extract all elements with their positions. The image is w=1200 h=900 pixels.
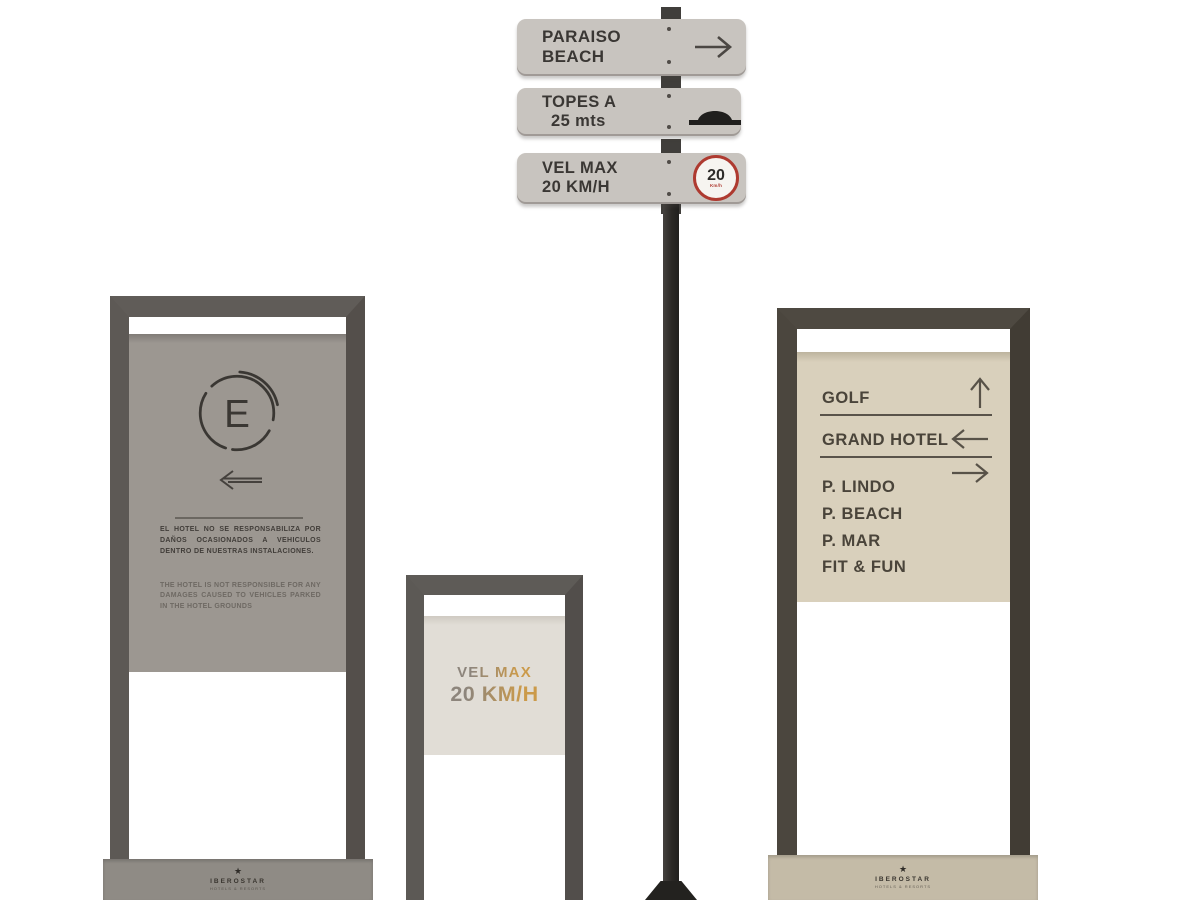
wayfinding-item-p-beach: P. BEACH [822, 505, 903, 524]
parking-sign-plinth: ★ IBEROSTAR HOTELS & RESORTS [103, 859, 373, 900]
rivet-icon [667, 192, 671, 196]
plate-label-line1: PARAISO [542, 27, 621, 47]
parking-sign-panel: E EL HOTEL NO SE RESPONSABILIZA POR DAÑO… [129, 334, 346, 672]
parking-symbol-icon: E [191, 367, 283, 459]
divider [820, 414, 992, 416]
arrow-right-icon [949, 460, 991, 486]
pole-bracket [661, 139, 681, 154]
plate-label: PARAISO BEACH [542, 27, 621, 67]
wayfinding-sign-plinth: ★ IBEROSTAR HOTELS & RESORTS [768, 855, 1038, 900]
plate-label-line2: 25 mts [542, 112, 616, 131]
speed-sign-panel: VEL MAX 20 KM/H [424, 616, 565, 755]
sign-pole-foot [645, 881, 697, 900]
direction-plate-paraiso-beach: PARAISO BEACH [517, 19, 746, 76]
rivet-icon [667, 160, 671, 164]
rivet-icon [667, 27, 671, 31]
speed-limit-value: 20 [707, 168, 725, 183]
arrow-left-icon [214, 468, 264, 492]
direction-plate-vel-max: VEL MAX 20 KM/H 20 Km/h [517, 153, 746, 204]
plate-label-line1: VEL MAX [542, 159, 618, 178]
arrow-right-icon [692, 32, 734, 62]
brand-name: IBEROSTAR [210, 878, 266, 885]
plate-label: VEL MAX 20 KM/H [542, 159, 618, 197]
disclaimer-spanish: EL HOTEL NO SE RESPONSABILIZA POR DAÑOS … [160, 525, 321, 557]
plate-label-line2: 20 KM/H [542, 178, 618, 197]
rivet-icon [667, 94, 671, 98]
star-icon: ★ [234, 867, 242, 876]
pole-bracket [661, 74, 681, 89]
parking-symbol-letter: E [224, 393, 250, 436]
speed-limit-badge: 20 Km/h [693, 155, 739, 201]
divider [820, 456, 992, 458]
wayfinding-item-fit-fun: FIT & FUN [822, 558, 906, 577]
speed-bump-icon [687, 101, 743, 127]
brand-name: IBEROSTAR [875, 876, 931, 883]
signage-render-stage: PARAISO BEACH TOPES A 25 mts VEL MAX 20 … [0, 0, 1200, 900]
wayfinding-sign-panel: GOLF GRAND HOTEL P. LINDO P. BEACH P. MA… [797, 352, 1010, 602]
star-icon: ★ [899, 865, 907, 874]
plate-label-line1: TOPES A [542, 93, 616, 112]
plate-label-line2: BEACH [542, 47, 621, 67]
rivet-icon [667, 125, 671, 129]
plate-label: TOPES A 25 mts [542, 93, 616, 131]
disclaimer-english: THE HOTEL IS NOT RESPONSIBLE FOR ANY DAM… [160, 581, 321, 612]
rivet-icon [667, 60, 671, 64]
sign-pole [663, 196, 679, 888]
wayfinding-item-golf: GOLF [822, 389, 870, 408]
brand-tagline: HOTELS & RESORTS [210, 886, 266, 891]
arrow-left-icon [949, 426, 991, 452]
wayfinding-item-p-mar: P. MAR [822, 532, 881, 551]
speed-sign-line1: VEL MAX [457, 664, 532, 682]
speed-sign-line2: 20 KM/H [450, 682, 538, 706]
wayfinding-item-p-lindo: P. LINDO [822, 478, 895, 497]
arrow-up-icon [967, 376, 993, 410]
wayfinding-item-grand-hotel: GRAND HOTEL [822, 431, 949, 450]
divider [175, 517, 303, 519]
speed-limit-unit: Km/h [710, 183, 722, 188]
direction-plate-topes: TOPES A 25 mts [517, 88, 741, 136]
brand-tagline: HOTELS & RESORTS [875, 884, 931, 889]
